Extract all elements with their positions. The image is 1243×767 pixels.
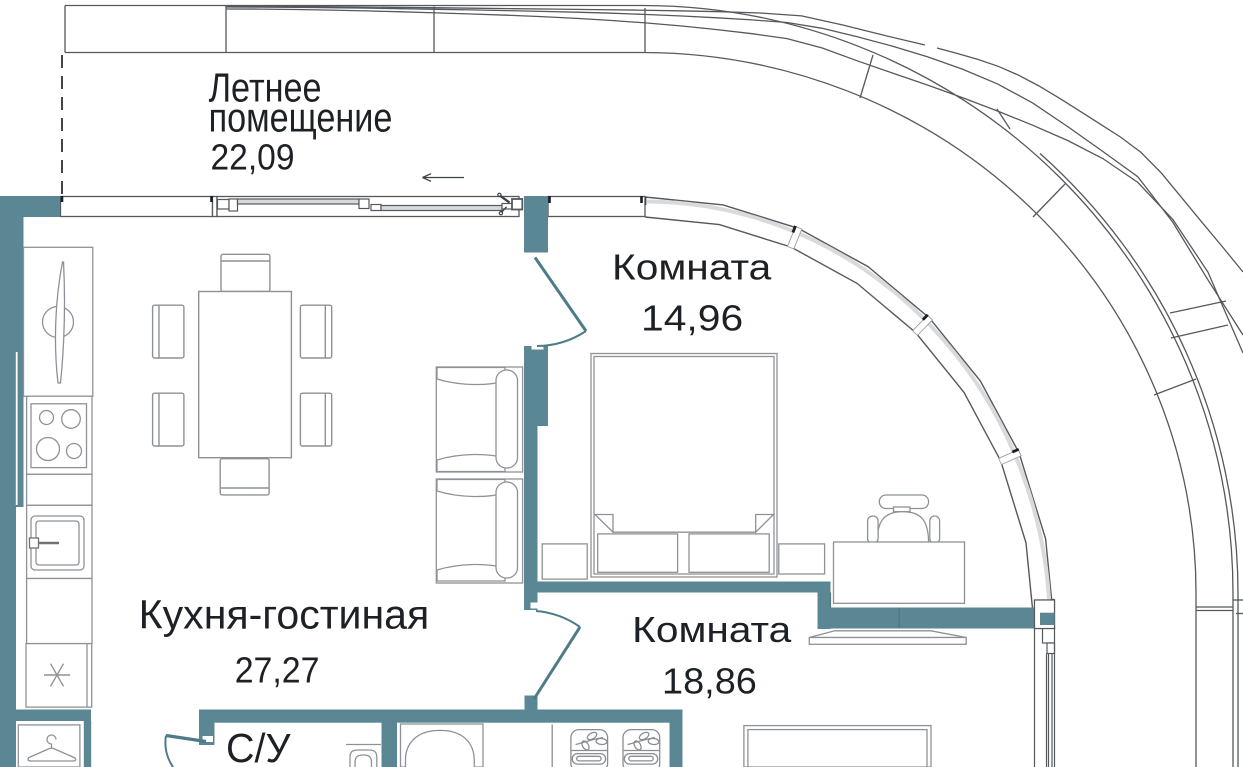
svg-text:помещение: помещение xyxy=(209,95,393,141)
svg-text:Комната: Комната xyxy=(612,247,772,288)
svg-text:14,96: 14,96 xyxy=(641,297,743,338)
svg-text:Кухня-гостиная: Кухня-гостиная xyxy=(139,592,430,638)
svg-text:22,09: 22,09 xyxy=(211,137,295,178)
svg-text:18,86: 18,86 xyxy=(662,660,757,701)
svg-text:Комната: Комната xyxy=(632,609,792,650)
svg-text:27,27: 27,27 xyxy=(235,649,320,690)
svg-text:С/У: С/У xyxy=(226,725,291,767)
